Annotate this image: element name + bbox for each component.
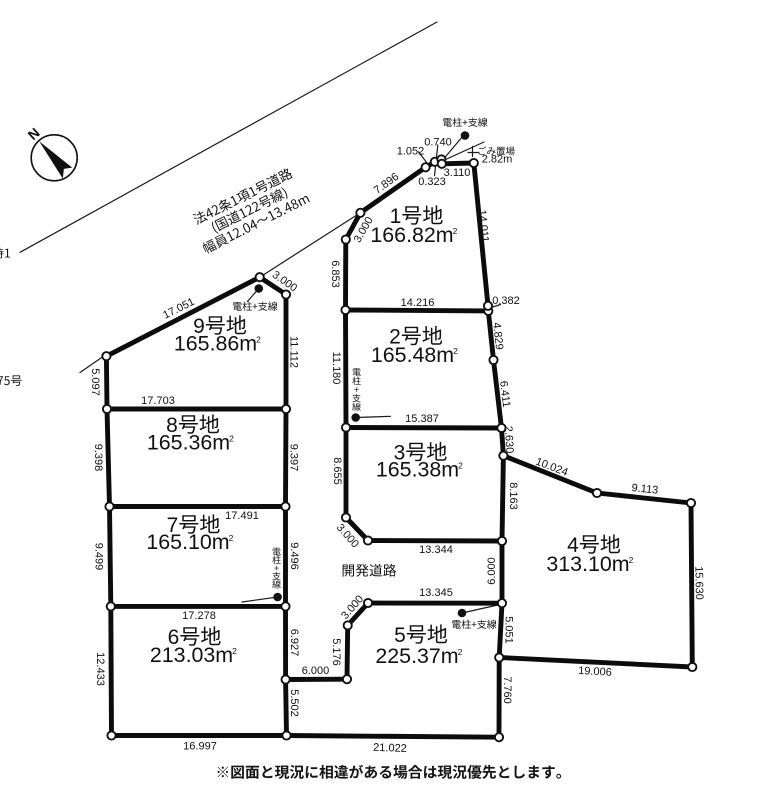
svg-text:11.112: 11.112	[288, 336, 300, 368]
svg-text:17.278: 17.278	[182, 610, 216, 622]
svg-text:19.006: 19.006	[578, 665, 612, 679]
svg-text:2: 2	[229, 533, 234, 543]
svg-text:2: 2	[256, 335, 261, 345]
svg-text:2: 2	[229, 434, 234, 444]
svg-text:17.491: 17.491	[225, 510, 259, 522]
svg-text:15.630: 15.630	[692, 566, 705, 600]
svg-text:2: 2	[458, 647, 463, 657]
svg-text:9.397: 9.397	[288, 444, 300, 472]
svg-text:7.760: 7.760	[501, 676, 513, 704]
svg-text:2.630: 2.630	[502, 425, 515, 453]
svg-text:21.022: 21.022	[373, 742, 407, 755]
svg-text:5.502: 5.502	[288, 689, 300, 717]
svg-text:12.433: 12.433	[94, 652, 106, 686]
svg-text:11.180: 11.180	[330, 352, 342, 385]
svg-text:5.097: 5.097	[89, 368, 101, 396]
svg-text:165.36m: 165.36m	[147, 431, 230, 455]
svg-text:9.499: 9.499	[93, 543, 105, 571]
svg-text:225.37m: 225.37m	[375, 644, 458, 668]
svg-text:3.110: 3.110	[444, 167, 471, 179]
svg-text:8.655: 8.655	[331, 457, 343, 485]
svg-text:13.345: 13.345	[419, 587, 453, 599]
svg-text:165.48m: 165.48m	[371, 343, 454, 367]
svg-text:2: 2	[453, 346, 458, 356]
svg-text:165.38m: 165.38m	[376, 458, 459, 482]
svg-text:2: 2	[453, 226, 458, 236]
svg-text:1.052: 1.052	[397, 145, 425, 157]
svg-text:2: 2	[458, 461, 463, 471]
svg-text:6.000: 6.000	[486, 557, 498, 585]
svg-text:6.927: 6.927	[288, 629, 300, 657]
svg-text:165.10m: 165.10m	[146, 530, 229, 554]
svg-text:15.387: 15.387	[405, 413, 439, 425]
svg-text:313.10m: 313.10m	[546, 552, 629, 576]
svg-text:6.000: 6.000	[302, 665, 330, 677]
svg-text:0.382: 0.382	[492, 295, 520, 307]
svg-text:9.496: 9.496	[288, 542, 300, 570]
svg-text:165.86m: 165.86m	[174, 332, 257, 356]
svg-text:8.163: 8.163	[507, 482, 519, 510]
svg-text:2.82m: 2.82m	[482, 153, 513, 165]
svg-text:17.703: 17.703	[141, 395, 175, 407]
svg-text:13.344: 13.344	[419, 544, 453, 556]
svg-text:5.176: 5.176	[330, 638, 342, 666]
svg-text:213.03m: 213.03m	[150, 643, 233, 667]
svg-text:9.398: 9.398	[92, 444, 104, 472]
svg-text:2: 2	[232, 646, 237, 656]
svg-text:6.853: 6.853	[329, 260, 341, 288]
svg-text:5.051: 5.051	[503, 616, 515, 644]
svg-text:0.740: 0.740	[424, 136, 452, 148]
svg-text:0.323: 0.323	[418, 176, 446, 188]
svg-text:166.82m: 166.82m	[370, 223, 453, 247]
svg-text:16.997: 16.997	[183, 740, 217, 752]
svg-text:14.216: 14.216	[401, 297, 435, 309]
svg-text:2: 2	[629, 555, 634, 565]
